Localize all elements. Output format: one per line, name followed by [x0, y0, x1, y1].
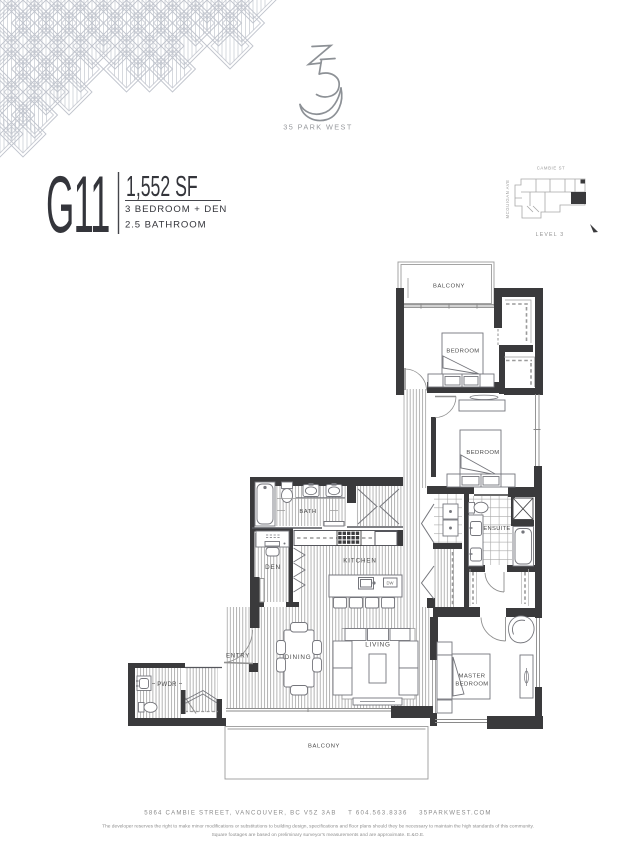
svg-text:5864 CAMBIE STREET, VANCOUVER,: 5864 CAMBIE STREET, VANCOUVER, BC V5Z 3A…: [144, 810, 491, 817]
svg-text:BEDROOM: BEDROOM: [455, 682, 488, 688]
svg-text:3 BEDROOM + DEN: 3 BEDROOM + DEN: [125, 204, 227, 215]
svg-text:DINING: DINING: [285, 654, 312, 661]
svg-text:BATH: BATH: [299, 509, 316, 515]
svg-text:MASTER: MASTER: [459, 674, 486, 680]
svg-text:The developer reserves the rig: The developer reserves the right to make…: [102, 824, 534, 830]
svg-text:ENSUITE: ENSUITE: [483, 526, 510, 532]
svg-text:35 PARK WEST: 35 PARK WEST: [283, 123, 352, 132]
svg-text:MCGUIGAN AVE: MCGUIGAN AVE: [505, 180, 510, 219]
svg-text:BALCONY: BALCONY: [433, 284, 465, 290]
svg-text:DEN: DEN: [265, 564, 281, 571]
svg-text:LEVEL 3: LEVEL 3: [536, 232, 565, 238]
svg-text:DW: DW: [387, 581, 394, 586]
svg-text:G11: G11: [46, 160, 109, 250]
svg-text:PWDR: PWDR: [157, 682, 177, 688]
svg-text:2.5 BATHROOM: 2.5 BATHROOM: [125, 220, 207, 231]
svg-text:Square footages are based on p: Square footages are based on preliminary…: [212, 832, 425, 838]
svg-text:CAMBIE ST: CAMBIE ST: [537, 166, 566, 171]
svg-text:BALCONY: BALCONY: [308, 744, 340, 750]
svg-text:ENTRY: ENTRY: [226, 653, 250, 660]
svg-text:1,552 SF: 1,552 SF: [126, 172, 198, 203]
svg-text:BEDROOM: BEDROOM: [446, 349, 479, 355]
svg-text:BEDROOM: BEDROOM: [466, 450, 499, 456]
svg-text:KITCHEN: KITCHEN: [343, 558, 376, 565]
svg-text:LIVING: LIVING: [365, 642, 390, 649]
